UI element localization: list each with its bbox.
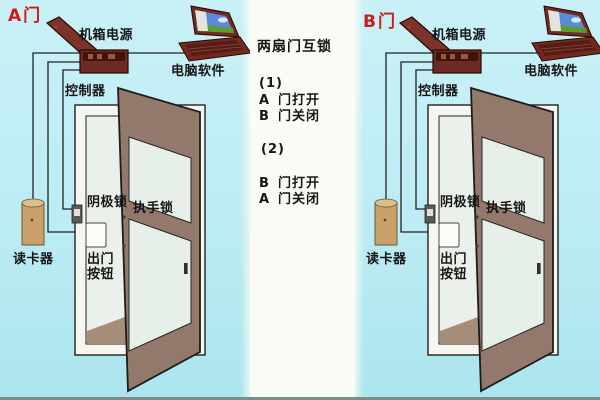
cathode-lock-label: 阴极锁 <box>87 195 128 210</box>
control-box-icon <box>400 17 481 73</box>
door-leaf <box>118 88 200 391</box>
interlock-diagram: 两扇门互锁 (1) A门打开 B门关闭 (2) B门打开 A门关闭 <box>0 0 600 400</box>
section-door-b: B门 机箱电源 控制器 电脑软件 阴极锁 执手锁 出门 按钮 读卡器 <box>353 0 600 397</box>
exit-button-device <box>86 223 106 247</box>
case-2-line-1: B门打开 <box>259 176 320 191</box>
cathode-lock-device <box>72 205 82 223</box>
door-leaf <box>471 88 553 391</box>
interlock-title: 两扇门互锁 <box>257 40 332 55</box>
power-supply-label: 机箱电源 <box>79 28 133 43</box>
card-reader-icon <box>22 199 44 245</box>
case-1-line-2: B门关闭 <box>259 109 320 124</box>
laptop-icon <box>532 6 600 61</box>
door-handle <box>184 263 188 274</box>
handle-lock-label: 执手锁 <box>133 201 174 216</box>
exit-button-label: 出门 按钮 <box>440 252 467 282</box>
cathode-lock-label: 阴极锁 <box>440 195 481 210</box>
control-box-icon <box>47 17 128 73</box>
power-supply-label: 机箱电源 <box>432 28 486 43</box>
controller-label: 控制器 <box>65 84 106 99</box>
section-door-a: A门 机箱电源 控制器 电脑软件 阴极锁 执手锁 出门 按钮 读卡器 <box>0 0 250 397</box>
handle-lock-label: 执手锁 <box>486 201 527 216</box>
card-reader-label: 读卡器 <box>366 252 407 267</box>
case-1-number: (1) <box>259 76 283 91</box>
door-b-title: B门 <box>363 15 397 30</box>
interlock-legend: 两扇门互锁 (1) A门打开 B门关闭 (2) B门打开 A门关闭 <box>250 0 355 397</box>
door-a-title: A门 <box>8 9 42 24</box>
case-2-line-2: A门关闭 <box>259 192 320 207</box>
exit-button-device <box>439 223 459 247</box>
computer-software-label: 电脑软件 <box>524 64 578 79</box>
controller-label: 控制器 <box>418 84 459 99</box>
card-reader-label: 读卡器 <box>13 252 54 267</box>
cathode-lock-device <box>425 205 435 223</box>
door-handle <box>537 263 541 274</box>
legend-panel: 两扇门互锁 (1) A门打开 B门关闭 (2) B门打开 A门关闭 <box>250 0 355 397</box>
laptop-icon <box>179 6 250 61</box>
computer-software-label: 电脑软件 <box>171 64 225 79</box>
case-2-number: (2) <box>261 142 285 157</box>
exit-button-label: 出门 按钮 <box>87 252 114 282</box>
case-1-line-1: A门打开 <box>259 93 320 108</box>
card-reader-icon <box>375 199 397 245</box>
